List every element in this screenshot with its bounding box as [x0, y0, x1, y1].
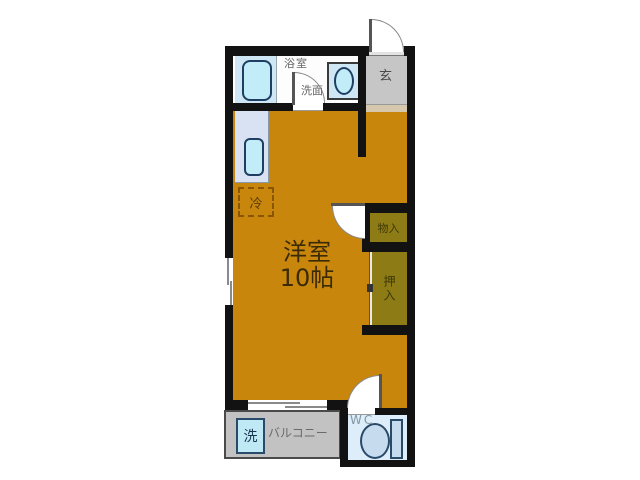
main-room-label: 洋室 10帖	[272, 240, 342, 292]
wc-left-wall	[340, 408, 348, 467]
washbasin-sink-icon	[334, 67, 354, 95]
wc-top-wall	[375, 408, 415, 415]
closet-label: 押入	[381, 275, 398, 303]
washroom-door-threshold	[293, 103, 323, 111]
entrance-divider-wall	[358, 56, 366, 157]
main-room-size: 10帖	[272, 266, 342, 292]
washroom-label: 洗面	[301, 85, 323, 96]
wc-bottom-wall	[340, 460, 415, 467]
wc-door-threshold	[348, 408, 375, 415]
storage-door-leaf	[331, 203, 365, 206]
main-room-name: 洋室	[272, 240, 342, 266]
entrance-step	[366, 104, 407, 112]
top-wall-left	[225, 46, 369, 56]
washing-machine-label: 洗	[244, 426, 258, 446]
right-wall	[407, 46, 415, 467]
refrigerator-space: 冷	[238, 187, 274, 217]
left-window-pane-1	[227, 258, 229, 285]
closet-mid-wall	[362, 242, 407, 252]
kitchen-sink-icon	[244, 138, 264, 176]
bathroom-bottom-wall-left	[233, 103, 293, 111]
closet-floor: 押入	[372, 252, 407, 325]
left-window-pane-2	[230, 281, 232, 305]
bottom-wall-left	[225, 400, 248, 410]
closet-sliding-door-handle	[367, 284, 373, 292]
toilet-bowl-icon	[360, 423, 390, 459]
closet-bottom-wall	[362, 325, 407, 335]
balcony-window-pane-1	[248, 402, 300, 404]
left-wall-upper	[225, 46, 233, 258]
storage-label: 物入	[378, 220, 400, 236]
entrance-door-arc	[371, 19, 404, 52]
left-wall-lower	[225, 305, 233, 410]
toilet-tank-icon	[390, 419, 403, 459]
entrance-label: 玄	[379, 70, 392, 83]
washing-machine-icon: 洗	[236, 418, 265, 454]
balcony-window-pane-2	[285, 406, 327, 408]
storage-floor: 物入	[370, 213, 407, 242]
refrigerator-label: 冷	[249, 193, 262, 212]
wc-door-leaf	[379, 374, 382, 408]
washroom-door-leaf	[292, 72, 295, 105]
floor-plan: 冷 物入 押入 WC 洗 バルコニー	[0, 0, 640, 480]
balcony-label: バルコニー	[268, 427, 328, 439]
bathroom-label: 浴室	[284, 58, 308, 69]
bathtub-icon	[242, 60, 272, 101]
entrance-door-leaf	[369, 19, 372, 52]
